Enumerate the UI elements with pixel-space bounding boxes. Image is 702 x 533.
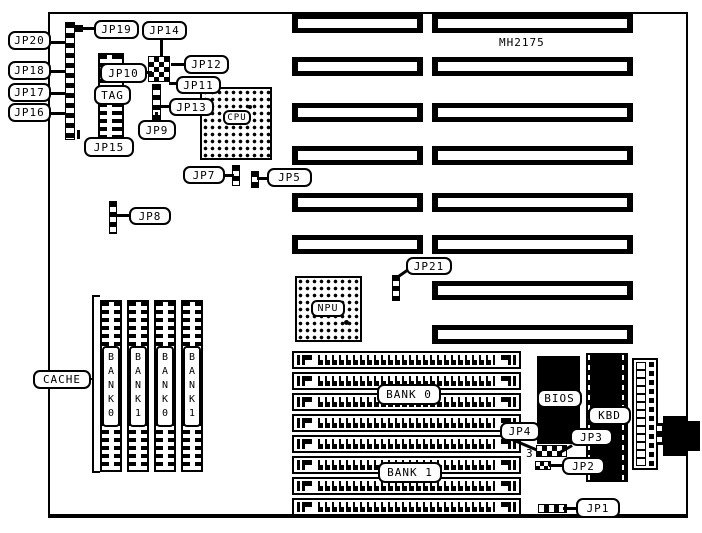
jumper-strip-jp15-jp20: [65, 22, 75, 140]
din-notch: [657, 437, 662, 442]
callout-tag: TAG: [94, 85, 131, 105]
callout-jp20: JP20: [8, 31, 51, 50]
cache-bank-label-4: BANK1: [183, 346, 201, 427]
power-connector-keys: [649, 362, 654, 466]
cache-bank-label-1: BANK0: [102, 346, 120, 427]
callout-jp19: JP19: [94, 20, 139, 39]
motherboard-jumper-diagram: MH2175 CPU NPU 3 BANK0 BANK1 BANK0 BANK1: [0, 0, 702, 533]
jumper-block-jp11-jp12-jp14: [148, 56, 170, 82]
slot-opening: [438, 198, 627, 207]
callout-jp17: JP17: [8, 83, 51, 102]
callout-jp11: JP11: [176, 76, 221, 94]
isa-slot-6-left: [292, 235, 423, 254]
cpu-pin1-dot: [248, 105, 252, 109]
slot-opening: [438, 151, 627, 160]
isa-slot-4-left: [292, 146, 423, 165]
slot-opening: [438, 240, 627, 249]
slot-opening: [438, 108, 627, 117]
power-connector-pins: [636, 362, 646, 466]
isa-slot-1-right: [432, 14, 633, 33]
slot-opening: [298, 151, 417, 160]
callout-jp21: JP21: [406, 257, 452, 275]
cache-brace-bottom: [92, 471, 100, 473]
callout-kbd: KBD: [588, 406, 631, 425]
simm-slot-1: [292, 351, 521, 369]
isa-slot-6-right: [432, 235, 633, 254]
slot-opening: [438, 19, 627, 28]
callout-jp4: JP4: [500, 422, 540, 441]
isa-slot-8-right: [432, 325, 633, 344]
callout-jp14: JP14: [142, 21, 187, 40]
pointer-jp14: [160, 39, 163, 57]
slot-opening: [298, 62, 417, 71]
slot-opening: [298, 198, 417, 207]
callout-jp15: JP15: [84, 137, 134, 157]
callout-jp18: JP18: [8, 61, 51, 80]
isa-slot-3-left: [292, 103, 423, 122]
model-text: MH2175: [499, 36, 545, 49]
isa-slot-4-right: [432, 146, 633, 165]
callout-jp12: JP12: [184, 55, 229, 74]
isa-slot-3-right: [432, 103, 633, 122]
isa-slot-5-right: [432, 193, 633, 212]
callout-jp9: JP9: [138, 120, 176, 140]
cache-bank-label-2: BANK1: [129, 346, 147, 427]
callout-jp10: JP10: [100, 63, 147, 83]
callout-jp7: JP7: [183, 166, 225, 184]
jumper-strip-jp8: [109, 201, 117, 234]
slot-opening: [298, 108, 417, 117]
simm-slot-8: [292, 498, 521, 516]
power-connector: [632, 358, 658, 470]
callout-cache: CACHE: [33, 370, 91, 389]
callout-jp3: JP3: [570, 428, 613, 446]
callout-simm-bank1: BANK 1: [378, 462, 442, 483]
isa-slot-5-left: [292, 193, 423, 212]
pin3-marker: 3: [526, 447, 534, 460]
slot-opening: [298, 240, 417, 249]
keyboard-din-connector: [663, 416, 688, 456]
pointer-jp15: [77, 130, 80, 139]
cache-brace-top: [92, 295, 100, 297]
callout-jp13: JP13: [169, 98, 214, 116]
npu-label: NPU: [311, 300, 345, 317]
isa-slot-7-right: [432, 281, 633, 300]
npu-pin1-dot: [344, 320, 349, 325]
callout-jp16: JP16: [8, 103, 51, 122]
cache-brace: [92, 295, 94, 473]
simm-slot-5: [292, 435, 521, 453]
slot-opening: [438, 62, 627, 71]
callout-bios: BIOS: [537, 389, 582, 408]
slot-opening: [438, 286, 627, 295]
callout-simm-bank0: BANK 0: [377, 384, 441, 405]
callout-jp8: JP8: [129, 207, 171, 225]
isa-slot-2-right: [432, 57, 633, 76]
slot-opening: [438, 330, 627, 339]
cpu-label: CPU: [223, 110, 251, 125]
isa-slot-1-left: [292, 14, 423, 33]
din-notch: [657, 426, 662, 431]
simm-slot-4: [292, 414, 521, 432]
callout-jp2: JP2: [562, 457, 605, 475]
slot-opening: [298, 19, 417, 28]
cache-bank-label-3: BANK0: [156, 346, 174, 427]
callout-jp5: JP5: [267, 168, 312, 187]
keyboard-din-connector-bump: [688, 421, 700, 451]
callout-jp1: JP1: [576, 498, 620, 518]
jumper-strip-jp21: [392, 275, 400, 301]
isa-slot-2-left: [292, 57, 423, 76]
